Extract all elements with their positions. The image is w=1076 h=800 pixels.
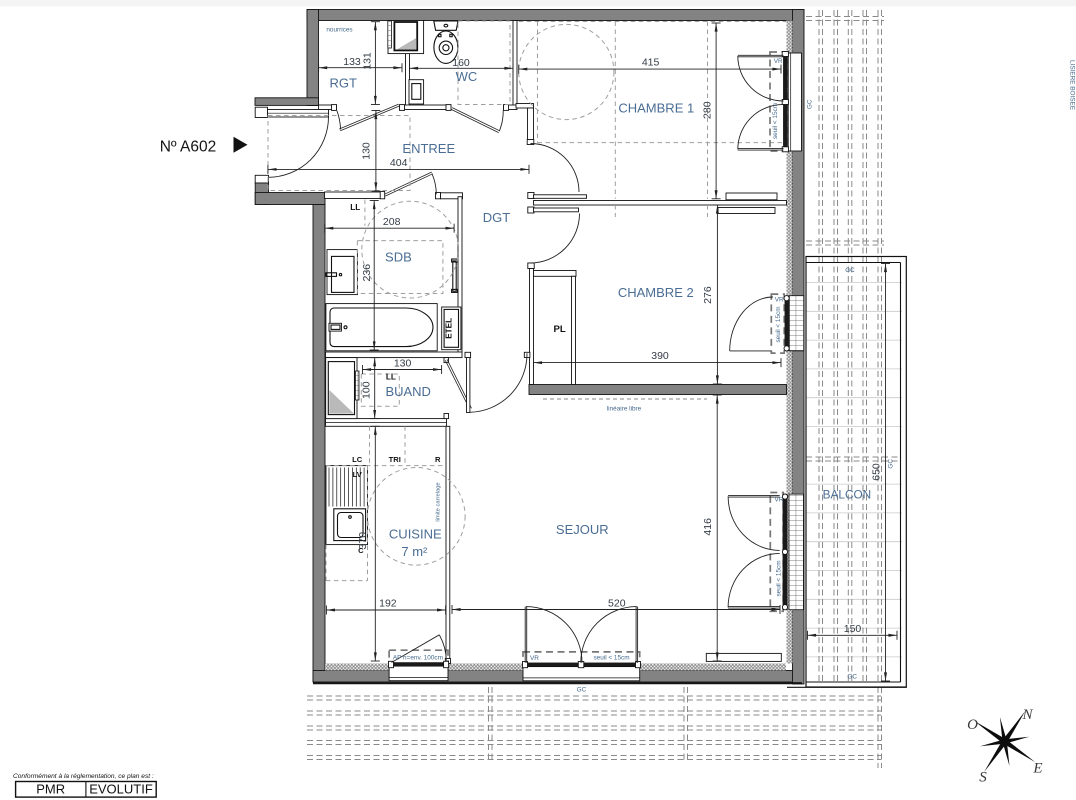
svg-text:LC: LC: [352, 455, 363, 464]
svg-text:seuil < 15cm: seuil < 15cm: [775, 306, 782, 342]
svg-text:VR: VR: [774, 58, 783, 65]
svg-text:AP h=env. 100cm: AP h=env. 100cm: [393, 655, 443, 662]
svg-text:276: 276: [702, 286, 714, 304]
svg-text:BALCON: BALCON: [823, 487, 872, 501]
svg-text:TRI: TRI: [389, 455, 401, 464]
svg-text:100: 100: [360, 381, 372, 399]
svg-text:280: 280: [702, 101, 714, 119]
svg-text:520: 520: [608, 597, 626, 609]
svg-text:192: 192: [379, 598, 397, 610]
svg-text:650: 650: [871, 463, 883, 481]
svg-text:130: 130: [394, 358, 412, 370]
svg-text:133: 133: [343, 56, 361, 68]
svg-text:416: 416: [702, 518, 714, 536]
svg-text:BUAND: BUAND: [385, 384, 431, 399]
svg-text:CHAMBRE 2: CHAMBRE 2: [618, 285, 694, 300]
svg-text:236: 236: [361, 264, 373, 282]
svg-text:131: 131: [362, 52, 374, 70]
svg-text:EVOLUTIF: EVOLUTIF: [89, 782, 153, 797]
svg-text:ENTREE: ENTREE: [402, 141, 455, 156]
svg-text:SDB: SDB: [385, 250, 412, 265]
svg-text:LV: LV: [353, 470, 363, 479]
svg-text:WC: WC: [456, 69, 478, 84]
svg-text:VR: VR: [530, 655, 539, 662]
svg-text:seuil < 15cm: seuil < 15cm: [772, 103, 779, 139]
svg-text:VR: VR: [774, 497, 783, 504]
svg-text:404: 404: [390, 157, 408, 169]
svg-text:N: N: [1021, 707, 1033, 723]
svg-text:GC: GC: [845, 267, 855, 274]
svg-text:415: 415: [642, 57, 660, 69]
svg-text:seuil < 15cm: seuil < 15cm: [593, 654, 629, 661]
svg-text:GC: GC: [577, 687, 587, 694]
svg-text:390: 390: [651, 350, 669, 362]
svg-text:seuil < 15cm: seuil < 15cm: [776, 560, 783, 596]
svg-text:limite carrelage: limite carrelage: [436, 482, 442, 521]
svg-text:LL: LL: [386, 372, 396, 381]
svg-text:E: E: [1032, 761, 1042, 777]
svg-text:150: 150: [844, 623, 862, 635]
svg-text:GC: GC: [847, 673, 857, 680]
svg-text:160: 160: [452, 57, 470, 69]
svg-text:S: S: [979, 770, 987, 786]
svg-text:GC: GC: [807, 99, 814, 109]
svg-text:nourrices: nourrices: [326, 27, 352, 34]
svg-text:7 m²: 7 m²: [401, 544, 428, 559]
svg-text:CUISINE: CUISINE: [389, 527, 442, 542]
svg-text:O: O: [967, 717, 978, 733]
svg-text:SEJOUR: SEJOUR: [556, 522, 609, 537]
svg-text:R: R: [435, 455, 441, 464]
svg-text:CHAMBRE 1: CHAMBRE 1: [618, 101, 694, 116]
svg-text:DGT: DGT: [483, 210, 511, 225]
svg-text:Conformément à la réglementati: Conformément à la réglementation, ce pla…: [13, 773, 154, 780]
svg-text:Nº A602: Nº A602: [160, 139, 217, 156]
svg-text:LISIERE BOISEE: LISIERE BOISEE: [1069, 60, 1076, 110]
svg-text:VR: VR: [775, 297, 784, 304]
svg-text:PL: PL: [553, 324, 565, 335]
svg-text:GC: GC: [888, 459, 895, 469]
svg-text:LL: LL: [350, 203, 360, 212]
svg-text:ETEL: ETEL: [445, 318, 454, 339]
svg-text:linéaire libre: linéaire libre: [607, 406, 642, 413]
svg-text:208: 208: [383, 216, 401, 228]
svg-text:130: 130: [360, 142, 372, 160]
svg-text:PMR: PMR: [36, 782, 65, 797]
svg-text:C: C: [358, 546, 364, 555]
svg-text:RGT: RGT: [329, 76, 357, 91]
